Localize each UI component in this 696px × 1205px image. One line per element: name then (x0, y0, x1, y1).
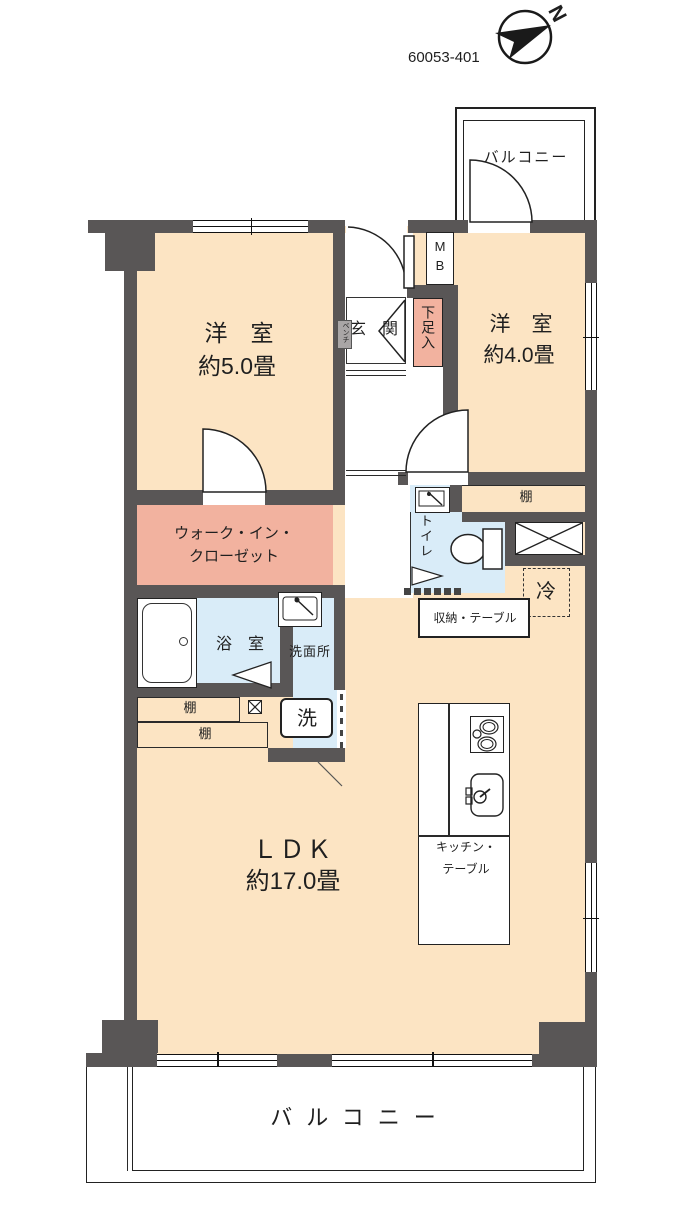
hall-extension (413, 367, 446, 472)
compass-north-label: N (542, 2, 570, 27)
kitchen-divider-v (448, 703, 450, 835)
balcony-bottom-label: バルコニー (270, 1105, 450, 1130)
window (332, 1054, 532, 1067)
kitchen-divider-h (418, 835, 510, 837)
dotted-wall (424, 588, 431, 595)
wall (443, 296, 458, 442)
bath-label: 浴 室 (216, 636, 264, 654)
wic-label-line2: クローゼット (189, 548, 279, 565)
kitchen-table-label-line1: キッチン・ (436, 841, 496, 855)
bedroom4-size: 約4.0畳 (483, 344, 554, 368)
entrance-label: 玄 関 (350, 321, 398, 339)
meter-box-label-b: B (436, 259, 445, 274)
wall (530, 220, 597, 233)
front-door-opening (346, 220, 407, 233)
toilet-label: トイレ (417, 514, 432, 559)
wall (532, 1054, 597, 1067)
crossed-closet (515, 522, 583, 555)
wall (334, 598, 345, 690)
balcony-door-opening (468, 220, 530, 233)
dotted-wall (454, 588, 461, 595)
stove (470, 716, 504, 753)
washing-machine: 洗 (280, 698, 333, 738)
refrigerator-label: 冷 (536, 581, 556, 604)
dotted-wall (404, 588, 411, 595)
wall (86, 1053, 157, 1067)
folding-door-dash (340, 706, 343, 712)
wall (268, 748, 345, 762)
shelf-label: 棚 (183, 701, 196, 716)
shoe-storage-label: 下足入 (420, 305, 436, 350)
dotted-wall (444, 588, 451, 595)
walk-in-closet (137, 505, 333, 585)
entrance-hall (345, 233, 413, 598)
shelf-label: 棚 (519, 490, 532, 505)
window (585, 283, 597, 390)
refrigerator: 冷 (523, 568, 570, 617)
storage-table: 収納・テーブル (418, 598, 530, 638)
bench: ベンチ (337, 320, 352, 349)
balcony-divider (127, 1067, 128, 1171)
wall (450, 485, 462, 512)
kitchen-table-label-line2: テーブル (442, 863, 489, 877)
bedroom4-door-opening (408, 472, 468, 485)
shelf-label: 棚 (198, 727, 211, 742)
shelf-line (462, 485, 585, 486)
wall (505, 522, 515, 555)
window (193, 220, 308, 233)
bedroom5-label: 洋 室 (205, 320, 274, 346)
ldk-size: 約17.0畳 (246, 868, 341, 896)
balcony-top-label: バルコニー (484, 149, 569, 166)
folding-door-dash (340, 730, 343, 736)
balcony-top-inner-rail (463, 120, 585, 226)
compass-icon (495, 11, 551, 63)
folding-door-dash (340, 694, 343, 700)
hall-threshold-line (346, 470, 406, 471)
washroom-sink (278, 592, 322, 627)
hall-threshold-line (346, 475, 406, 476)
wall (462, 512, 585, 522)
washing-machine-label: 洗 (297, 708, 317, 731)
bedroom5-size: 約5.0畳 (198, 353, 276, 379)
bedroom4-label: 洋 室 (490, 313, 553, 337)
shoe-storage: 下足入 (413, 298, 443, 367)
dotted-wall (434, 588, 441, 595)
folding-door-dash (340, 742, 343, 748)
wall (539, 1022, 597, 1054)
wic-label-line1: ウォーク・イン・ (174, 525, 294, 542)
wall (333, 233, 345, 492)
genkan-step-line (346, 370, 406, 371)
crossed-box-small (248, 700, 262, 714)
meter-box: M B (426, 232, 454, 285)
wall (505, 555, 585, 566)
dotted-wall (414, 588, 421, 595)
plan-id: 60053-401 (408, 49, 480, 66)
ldk-label: ＬＤＫ (252, 836, 333, 865)
bedroom5-door-opening (203, 490, 265, 505)
bench-label: ベンチ (341, 322, 349, 343)
meter-box-label-m: M (435, 240, 446, 255)
washroom-label: 洗面所 (289, 645, 331, 660)
genkan-step-line (346, 375, 406, 376)
floor-plan: 60053-401 N バルコニー (0, 0, 696, 1205)
window (585, 863, 597, 972)
wall (277, 1054, 332, 1067)
storage-table-label: 収納・テーブル (433, 612, 516, 626)
wall (124, 233, 137, 1022)
bathtub-drain (179, 637, 188, 646)
window (157, 1054, 277, 1067)
toilet-sink (415, 487, 450, 513)
folding-door-dash (340, 718, 343, 724)
wall (102, 1020, 158, 1053)
